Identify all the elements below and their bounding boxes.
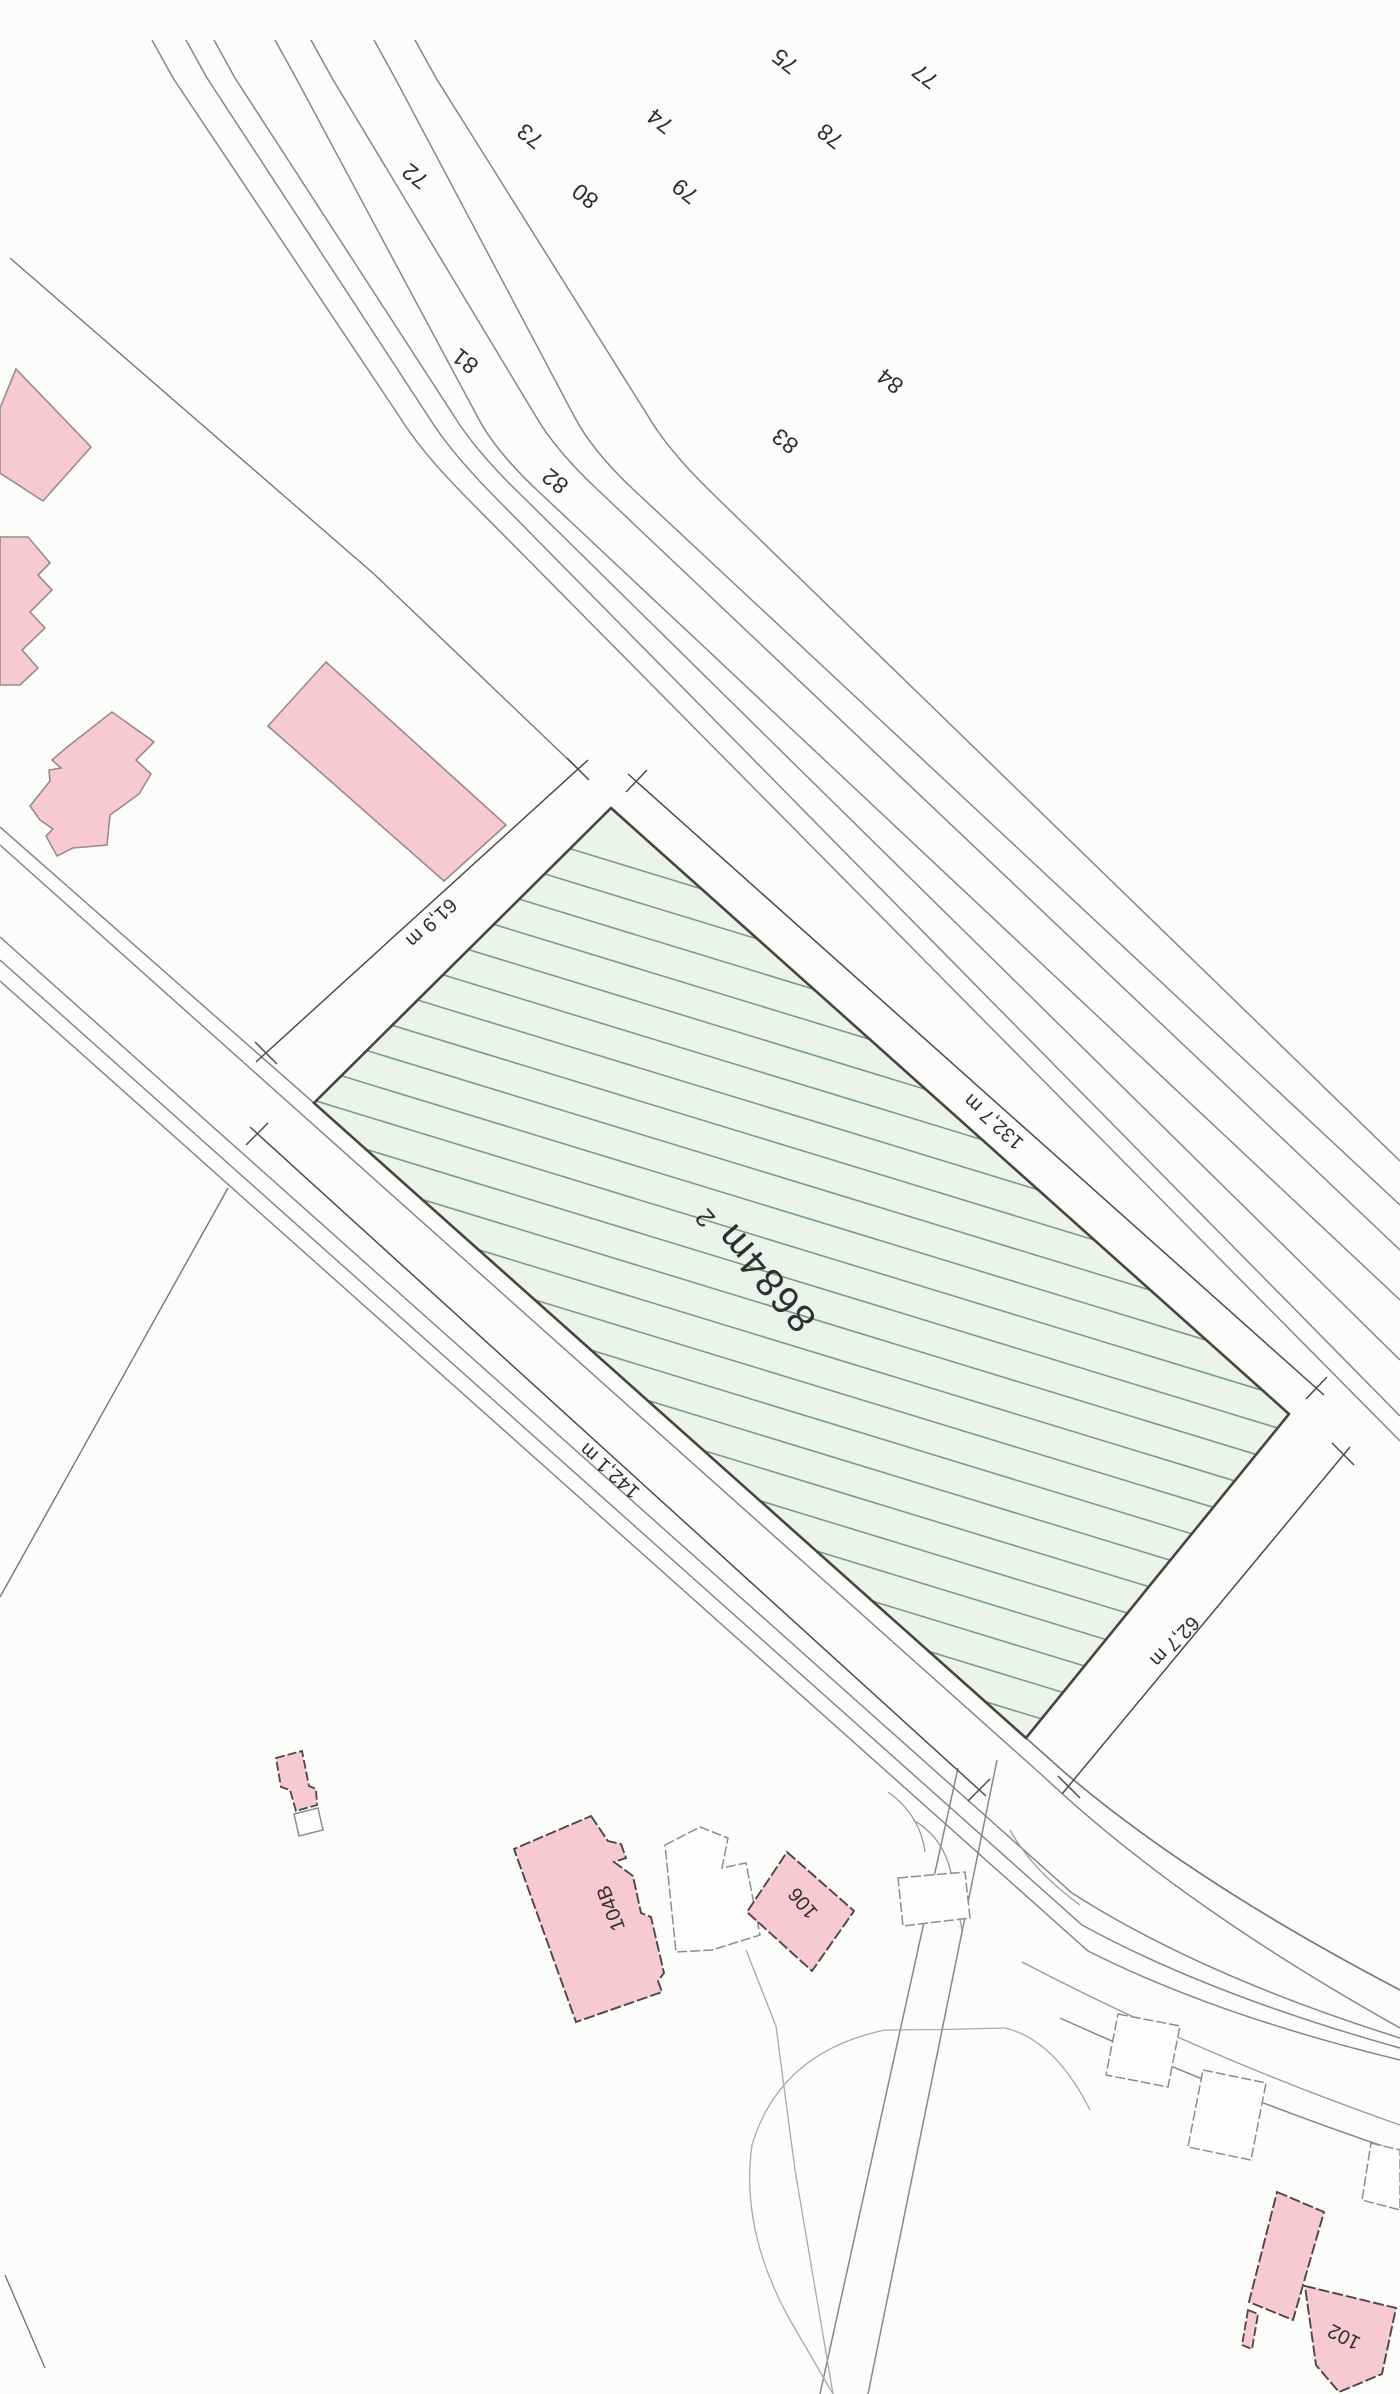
svg-text:84: 84: [872, 363, 908, 399]
svg-text:72: 72: [397, 158, 433, 194]
svg-text:79: 79: [667, 173, 703, 209]
svg-text:83: 83: [767, 423, 803, 459]
svg-text:78: 78: [812, 118, 848, 154]
svg-text:142,1 m: 142,1 m: [576, 1438, 644, 1503]
svg-text:80: 80: [567, 178, 603, 214]
svg-text:75: 75: [767, 43, 803, 79]
svg-text:62,7 m: 62,7 m: [1145, 1612, 1203, 1671]
svg-text:81: 81: [447, 343, 483, 379]
svg-text:73: 73: [512, 118, 548, 154]
svg-text:82: 82: [537, 463, 573, 499]
svg-text:74: 74: [642, 103, 678, 139]
svg-text:77: 77: [907, 58, 943, 94]
